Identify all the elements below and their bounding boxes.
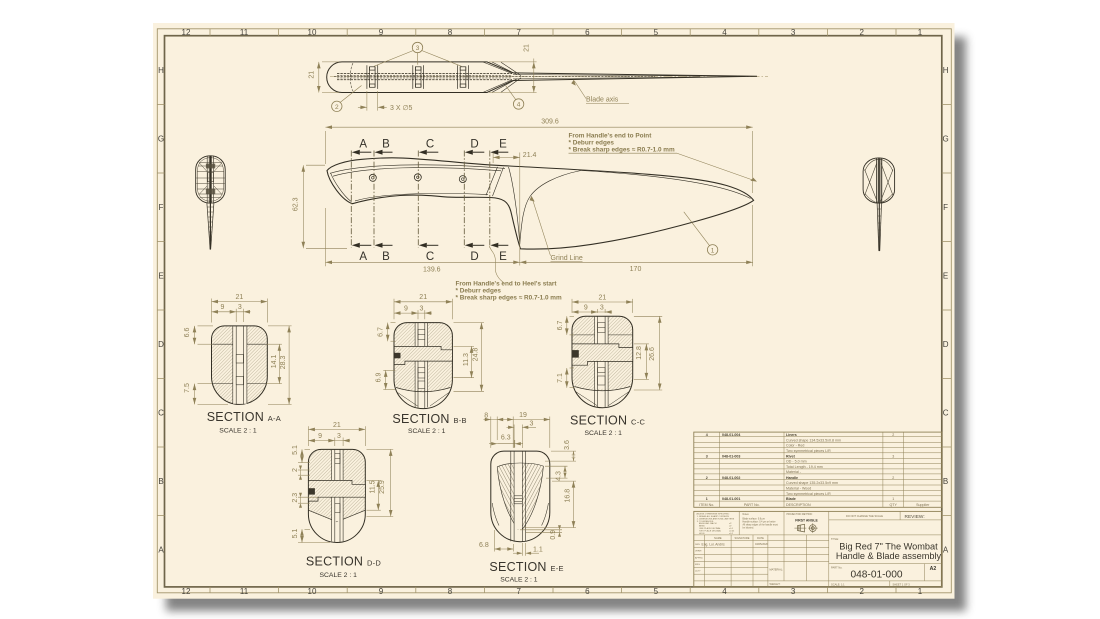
svg-text:* Break sharp edges ≈ R0.7-1.0: * Break sharp edges ≈ R0.7-1.0 mm	[569, 147, 675, 154]
svg-text:E: E	[499, 139, 507, 151]
svg-text:OD - 5.0 mm: OD - 5.0 mm	[786, 460, 807, 464]
svg-text:be blunted.: be blunted.	[743, 526, 755, 529]
svg-text:6: 6	[585, 587, 590, 596]
svg-text:24.8: 24.8	[473, 348, 480, 362]
svg-text:11: 11	[240, 587, 249, 596]
svg-text:3: 3	[530, 420, 534, 427]
svg-text:3: 3	[791, 28, 796, 37]
svg-text:WEIGHT:: WEIGHT:	[770, 582, 781, 586]
svg-text:6.3: 6.3	[501, 434, 511, 441]
svg-text:5: 5	[654, 28, 659, 37]
svg-text:5: 5	[654, 587, 659, 596]
svg-text:5.1: 5.1	[292, 529, 299, 539]
svg-text:PART No.: PART No.	[831, 565, 843, 569]
svg-text:VERIF.: VERIF.	[695, 551, 702, 553]
svg-text:FIRST ANGLE: FIRST ANGLE	[795, 518, 818, 522]
svg-text:* Break sharp edges ≈ R0.7-1.0: * Break sharp edges ≈ R0.7-1.0 mm	[456, 295, 562, 302]
svg-text:12: 12	[182, 587, 191, 596]
svg-text:SCALE 2 : 1: SCALE 2 : 1	[319, 572, 357, 579]
svg-text:7: 7	[516, 587, 521, 596]
svg-text:309.6: 309.6	[541, 119, 559, 126]
svg-text:04/05/2020: 04/05/2020	[755, 542, 769, 546]
svg-text:28.3: 28.3	[280, 355, 287, 369]
svg-text:REVIEW:: REVIEW:	[905, 514, 925, 520]
svg-text:4: 4	[706, 433, 708, 437]
svg-text:19: 19	[519, 412, 527, 419]
svg-text:4: 4	[722, 28, 727, 37]
svg-text:D: D	[943, 340, 949, 349]
svg-text:C: C	[158, 409, 164, 418]
svg-text:A2: A2	[930, 566, 937, 572]
svg-text:MFG: MFG	[695, 564, 700, 566]
svg-text:62.3: 62.3	[293, 197, 300, 211]
svg-text:7.5: 7.5	[184, 383, 191, 393]
svg-text:9: 9	[318, 433, 322, 440]
svg-text:Rivet: Rivet	[786, 454, 796, 458]
svg-text:12.8: 12.8	[636, 346, 643, 360]
svg-text:D: D	[470, 139, 478, 151]
svg-text:C: C	[426, 251, 434, 263]
svg-text:2: 2	[292, 468, 299, 472]
svg-text:DATE: DATE	[757, 536, 764, 540]
svg-text:SIGNATURE: SIGNATURE	[735, 536, 750, 540]
svg-text:9: 9	[379, 587, 384, 596]
svg-text:1.1: 1.1	[533, 547, 543, 554]
svg-text:048-01-000: 048-01-000	[850, 569, 902, 580]
svg-text:All sharp edges of the handle: All sharp edges of the handle must	[743, 523, 779, 526]
svg-text:Blade axis: Blade axis	[586, 97, 619, 104]
svg-text:SCALE 2 : 1: SCALE 2 : 1	[500, 577, 538, 584]
svg-text:G: G	[942, 135, 948, 144]
svg-text:* Deburr edges: * Deburr edges	[569, 140, 615, 147]
svg-text:21: 21	[523, 44, 530, 52]
svg-text:B: B	[382, 251, 390, 263]
svg-text:9: 9	[220, 304, 224, 311]
svg-text:F: F	[943, 203, 948, 212]
svg-text:139.6: 139.6	[423, 267, 441, 274]
svg-text:E: E	[158, 272, 163, 281]
svg-text:048-01-004: 048-01-004	[722, 433, 740, 437]
svg-text:10: 10	[308, 587, 317, 596]
svg-text:G: G	[158, 135, 164, 144]
svg-text:6.6: 6.6	[184, 328, 191, 338]
svg-text:4.3: 4.3	[556, 471, 563, 481]
svg-text:12: 12	[182, 28, 191, 37]
svg-text:6.8: 6.8	[479, 542, 489, 549]
svg-text:048-01-003: 048-01-003	[722, 454, 740, 458]
svg-text:SCALE 2 : 1: SCALE 2 : 1	[584, 430, 622, 437]
svg-text:Material - Wood: Material - Wood	[786, 486, 811, 490]
svg-text:Handle: Handle	[786, 476, 798, 480]
svg-text:1: 1	[706, 497, 708, 501]
svg-text:D: D	[158, 340, 164, 349]
svg-text:11: 11	[240, 28, 249, 37]
svg-text:6.7: 6.7	[378, 327, 385, 337]
svg-text:6: 6	[585, 28, 590, 37]
svg-text:H: H	[943, 66, 949, 75]
svg-text:ITEM No.: ITEM No.	[699, 503, 714, 507]
svg-text:11.3: 11.3	[463, 353, 470, 366]
svg-text:3: 3	[420, 306, 424, 313]
svg-text:048-01-002: 048-01-002	[722, 476, 740, 480]
svg-text:3: 3	[416, 45, 420, 52]
svg-text:7: 7	[516, 28, 521, 37]
svg-text:APPRD.: APPRD.	[695, 557, 704, 560]
svg-text:Grind Line: Grind Line	[551, 255, 583, 262]
svg-text:E: E	[943, 272, 948, 281]
svg-text:B: B	[158, 477, 163, 486]
svg-text:9: 9	[404, 306, 408, 313]
svg-text:QLTY: QLTY	[695, 571, 701, 573]
svg-text:Curved shape 134.5x33.5x0.8 mm: Curved shape 134.5x33.5x0.8 mm	[786, 438, 841, 442]
svg-text:B: B	[943, 477, 948, 486]
svg-text:3: 3	[238, 304, 242, 311]
svg-text:3: 3	[600, 304, 604, 311]
svg-text:8: 8	[484, 413, 488, 420]
svg-text:PROJECTION METHOD:: PROJECTION METHOD:	[787, 514, 813, 516]
svg-text:21: 21	[309, 71, 316, 79]
svg-text:3: 3	[706, 454, 708, 458]
svg-text:048-01-001: 048-01-001	[722, 497, 740, 501]
svg-text:Handle & Blade assembly: Handle & Blade assembly	[836, 551, 942, 561]
svg-text:5.1: 5.1	[292, 445, 299, 455]
svg-text:PART No.: PART No.	[744, 503, 760, 507]
svg-text:A: A	[158, 546, 164, 555]
svg-text:F: F	[159, 203, 164, 212]
svg-text:3: 3	[892, 454, 894, 458]
svg-text:26.6: 26.6	[649, 347, 656, 361]
svg-text:3 X ∅5: 3 X ∅5	[390, 105, 413, 112]
svg-text:8: 8	[448, 587, 453, 596]
svg-text:Blade surface: 0.8 μm: Blade surface: 0.8 μm	[743, 517, 765, 520]
svg-text:11.5: 11.5	[369, 480, 376, 493]
svg-text:Handle surface: 0.4 μm or bett: Handle surface: 0.4 μm or better	[743, 520, 776, 523]
svg-text:* Deburr edges: * Deburr edges	[456, 288, 502, 295]
svg-text:Liners: Liners	[786, 433, 797, 437]
svg-text:0.9: 0.9	[550, 530, 557, 540]
svg-text:Curved shape 135.2x33.5x9 mm: Curved shape 135.2x33.5x9 mm	[786, 481, 838, 485]
svg-text:25.9: 25.9	[379, 480, 386, 494]
svg-text:TITLE:: TITLE:	[831, 537, 839, 541]
svg-text:DESCRIPTION: DESCRIPTION	[786, 503, 811, 507]
svg-text:4: 4	[722, 587, 727, 596]
svg-text:2.3: 2.3	[292, 493, 299, 503]
svg-text:10: 10	[308, 28, 317, 37]
svg-text:DO NOT CHANGE THE SCALE: DO NOT CHANGE THE SCALE	[846, 514, 883, 518]
svg-text:1: 1	[918, 28, 923, 37]
svg-text:3: 3	[337, 433, 341, 440]
svg-text:7.1: 7.1	[557, 373, 564, 383]
svg-text:2: 2	[706, 476, 708, 480]
svg-text:A: A	[943, 546, 949, 555]
svg-text:2: 2	[892, 433, 894, 437]
svg-text:9: 9	[584, 304, 588, 311]
svg-text:SCALE: 1:1: SCALE: 1:1	[831, 582, 845, 586]
svg-text:1: 1	[711, 247, 715, 254]
svg-text:Two symmetrical pieces L/R: Two symmetrical pieces L/R	[786, 449, 831, 453]
svg-text:Blade: Blade	[786, 497, 796, 501]
svg-text:9: 9	[379, 28, 384, 37]
svg-text:Material -: Material -	[786, 470, 802, 474]
svg-text:A: A	[359, 139, 367, 151]
svg-text:E: E	[499, 251, 507, 263]
svg-text:Eng. Lui. Andris: Eng. Lui. Andris	[702, 542, 725, 546]
svg-text:A: A	[359, 251, 367, 263]
svg-text:MATERIAL:: MATERIAL:	[770, 567, 784, 571]
svg-text:16.8: 16.8	[565, 489, 572, 503]
svg-text:Two symmetrical pieces L/R: Two symmetrical pieces L/R	[786, 492, 831, 496]
svg-text:4: 4	[517, 102, 521, 109]
svg-text:2: 2	[335, 104, 339, 111]
svg-text:Supplier: Supplier	[916, 503, 930, 507]
svg-text:3.6: 3.6	[564, 440, 571, 450]
svg-text:Color - Red: Color - Red	[786, 444, 804, 448]
svg-text:6.7: 6.7	[557, 321, 564, 331]
svg-text:HOLE: HOLE	[699, 533, 705, 535]
svg-text:C: C	[426, 139, 434, 151]
svg-text:From Handle's end to Heel's st: From Handle's end to Heel's start	[456, 281, 558, 288]
svg-text:6.9: 6.9	[376, 373, 383, 383]
svg-text:21.4: 21.4	[523, 152, 537, 159]
svg-text:SCALE 2 : 1: SCALE 2 : 1	[219, 428, 257, 435]
svg-text:14.1: 14.1	[271, 354, 278, 368]
svg-text:B: B	[382, 139, 390, 151]
svg-text:2: 2	[859, 587, 864, 596]
svg-text:1: 1	[918, 587, 923, 596]
svg-text:DRN: DRN	[695, 544, 700, 546]
svg-text:NAME: NAME	[714, 536, 722, 540]
svg-text:3: 3	[791, 587, 796, 596]
svg-text:1: 1	[892, 497, 894, 501]
svg-text:D: D	[470, 251, 478, 263]
svg-text:2: 2	[892, 476, 894, 480]
svg-text:From Handle's end to Point: From Handle's end to Point	[569, 133, 653, 140]
svg-text:Notes:: Notes:	[743, 513, 750, 516]
svg-text:Total Length - 19.4 mm: Total Length - 19.4 mm	[786, 465, 823, 469]
svg-text:SCALE 2 : 1: SCALE 2 : 1	[408, 428, 446, 435]
svg-text:Big Red 7" The Wombat: Big Red 7" The Wombat	[839, 541, 938, 551]
svg-text:8: 8	[448, 28, 453, 37]
svg-text:SHEET 1 OF 3: SHEET 1 OF 3	[893, 582, 911, 586]
svg-text:21: 21	[599, 294, 607, 301]
svg-text:H: H	[158, 66, 164, 75]
svg-text:QTY: QTY	[890, 503, 898, 507]
svg-text:170: 170	[630, 266, 642, 273]
svg-text:C: C	[943, 409, 949, 418]
svg-text:21: 21	[236, 294, 244, 301]
svg-text:21: 21	[333, 422, 341, 429]
svg-text:2: 2	[859, 28, 864, 37]
svg-text:21: 21	[419, 294, 427, 301]
